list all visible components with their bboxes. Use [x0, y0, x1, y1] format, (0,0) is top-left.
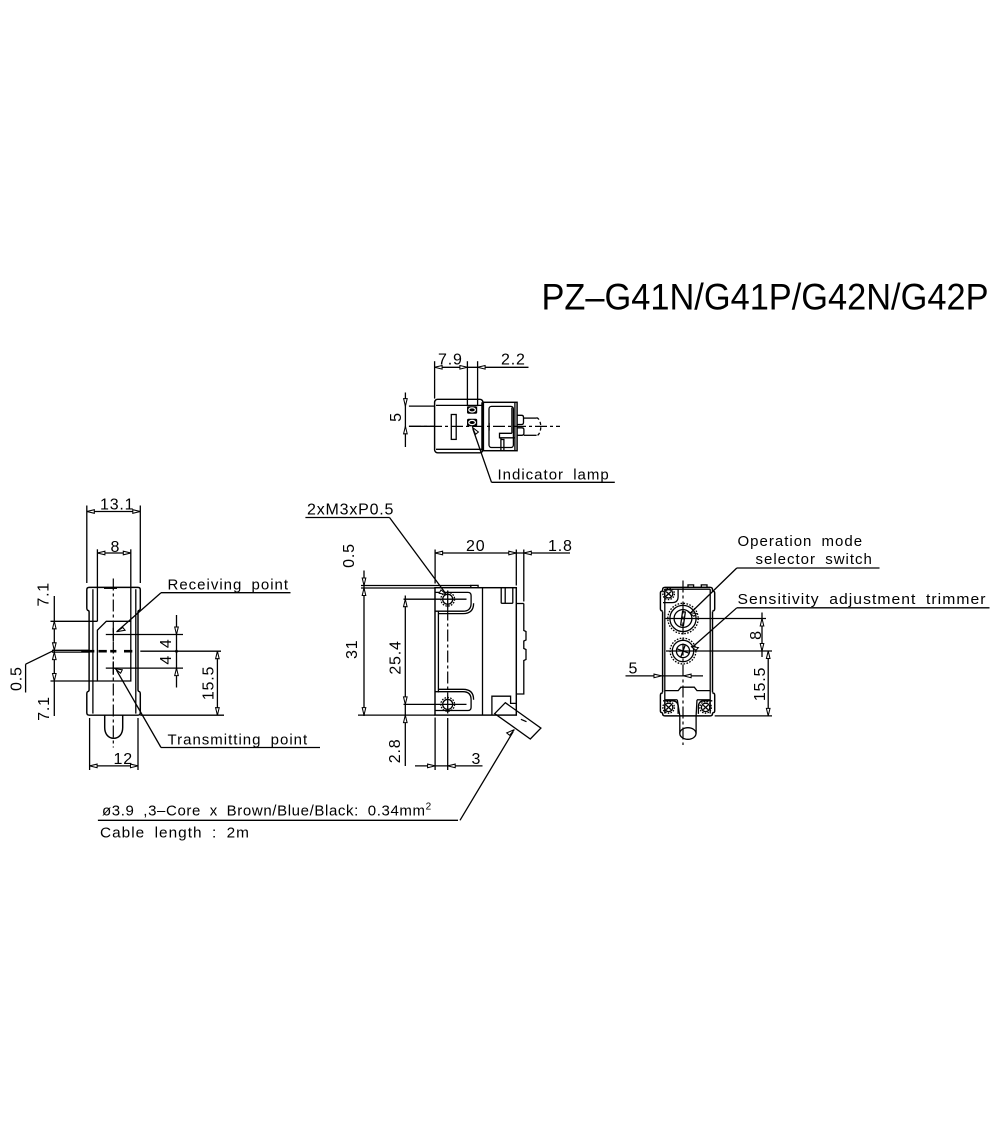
svg-text:2xM3xP0.5: 2xM3xP0.5 [307, 501, 394, 518]
svg-text:8: 8 [111, 539, 121, 556]
svg-text:Transmitting point: Transmitting point [168, 731, 309, 748]
svg-text:0.5: 0.5 [9, 666, 26, 691]
svg-text:2.2: 2.2 [501, 352, 526, 369]
svg-text:15.5: 15.5 [201, 666, 218, 700]
svg-text:7.9: 7.9 [438, 352, 463, 369]
svg-text:8: 8 [748, 630, 765, 640]
svg-text:Indicator lamp: Indicator lamp [498, 466, 610, 483]
svg-text:Receiving point: Receiving point [168, 577, 290, 594]
svg-text:7.1: 7.1 [36, 696, 53, 721]
svg-text:selector switch: selector switch [756, 551, 873, 568]
svg-text:13.1: 13.1 [100, 496, 134, 513]
svg-text:4: 4 [158, 638, 175, 648]
svg-text:Operation mode: Operation mode [738, 533, 864, 550]
svg-text:1.8: 1.8 [548, 538, 573, 555]
svg-text:2.8: 2.8 [387, 739, 404, 764]
svg-text:3: 3 [472, 751, 482, 768]
svg-text:31: 31 [344, 640, 361, 659]
svg-text:20: 20 [466, 538, 485, 555]
svg-text:12: 12 [114, 751, 133, 768]
svg-text:PZ–G41N/G41P/G42N/G42P: PZ–G41N/G41P/G42N/G42P [542, 277, 989, 318]
svg-text:Sensitivity adjustment trimmer: Sensitivity adjustment trimmer [738, 591, 987, 608]
svg-text:25.4: 25.4 [388, 640, 405, 674]
svg-text:Cable length : 2m: Cable length : 2m [100, 825, 250, 842]
svg-text:0.5: 0.5 [341, 543, 358, 568]
svg-text:4: 4 [158, 655, 175, 665]
svg-text:ø3.9 ,3–Core x Brown/Blue/Blac: ø3.9 ,3–Core x Brown/Blue/Black: 0.34mm2 [102, 802, 432, 820]
svg-text:15.5: 15.5 [752, 667, 769, 701]
svg-text:5: 5 [629, 661, 639, 678]
svg-text:5: 5 [388, 412, 405, 422]
svg-text:7.1: 7.1 [36, 582, 53, 607]
